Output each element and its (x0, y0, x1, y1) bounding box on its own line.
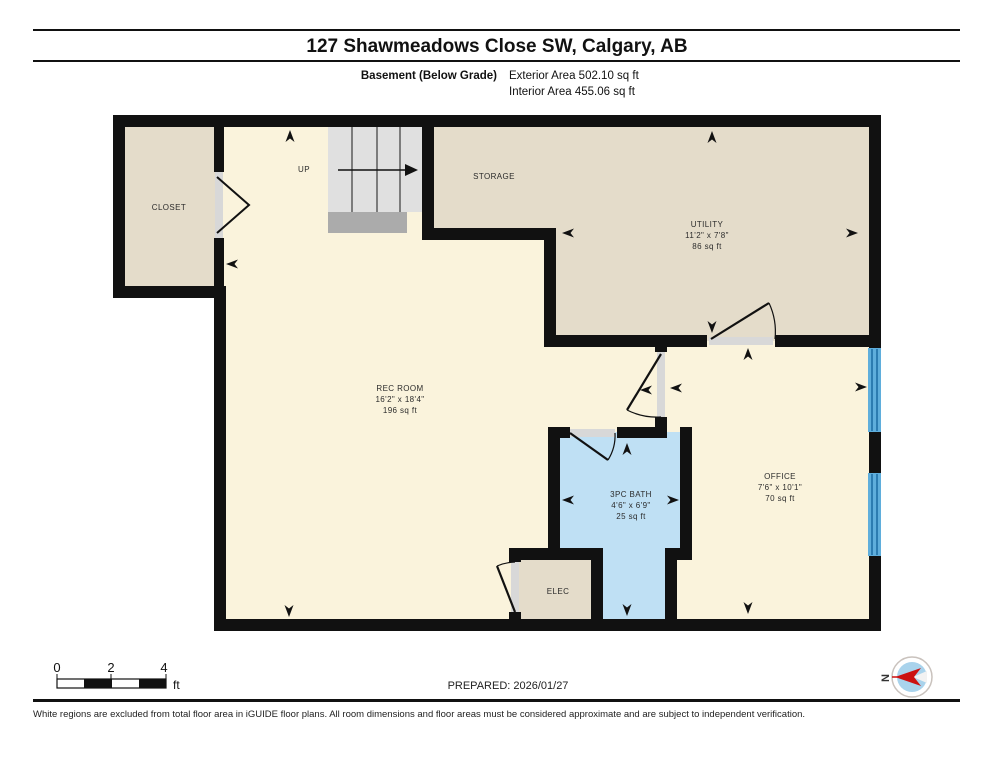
wall-bath-east (680, 427, 692, 560)
storage-label: STORAGE (473, 172, 515, 181)
bath-area: 25 sq ft (616, 512, 646, 521)
elec-label: ELEC (547, 587, 570, 596)
wall-corridor-east (665, 548, 677, 625)
wall-west-lower (214, 286, 226, 631)
page-title: 127 Shawmeadows Close SW, Calgary, AB (306, 36, 687, 57)
bath-dimensions: 4'6" x 6'9" (611, 501, 650, 510)
scale-bar-segment (139, 679, 166, 688)
closet-label: CLOSET (152, 203, 186, 212)
wall-right-lower (869, 556, 881, 631)
wall-closet-bottom (113, 286, 226, 298)
bath-door-jamb (570, 429, 615, 437)
wall-left (113, 115, 125, 298)
utility-dimensions: 11'2" x 7'8" (685, 231, 729, 240)
compass-north-label: N (880, 674, 892, 682)
wall-elec-east (591, 548, 603, 625)
stair-landing (328, 212, 407, 233)
wall-utility-bottom-east (775, 335, 881, 347)
floor-label: Basement (Below Grade) (361, 70, 497, 82)
utility-door-jamb (709, 337, 773, 345)
office-window-lower (868, 473, 881, 556)
scale-unit-label: ft (173, 678, 180, 692)
disclaimer-text: White regions are excluded from total fl… (33, 709, 805, 720)
wall-bath-west (548, 427, 560, 560)
wall-storage-bottom (422, 228, 556, 240)
header: 127 Shawmeadows Close SW, Calgary, AB Ba… (33, 29, 960, 98)
interior-area-label: Interior Area 455.06 sq ft (509, 86, 636, 98)
footer: White regions are excluded from total fl… (33, 699, 960, 720)
excluded-white-region (0, 298, 214, 700)
exterior-area-label: Exterior Area 502.10 sq ft (509, 70, 640, 82)
wall-divider-post-top (655, 335, 667, 352)
wall-right-mid (869, 432, 881, 473)
scale-tick-0: 0 (53, 660, 60, 675)
scale-bar-segment (84, 679, 112, 688)
floorplan-page: 127 Shawmeadows Close SW, Calgary, AB Ba… (0, 0, 993, 768)
wall-right-upper (869, 115, 881, 348)
rec-room-area: 196 sq ft (383, 406, 418, 415)
compass: N (880, 657, 932, 697)
rec-room-label: REC ROOM (376, 384, 423, 393)
office-label: OFFICE (764, 472, 796, 481)
wall-closet-right-lower (214, 238, 224, 286)
stairs-up-label: UP (298, 165, 310, 174)
wall-elec-top (509, 548, 603, 560)
wall-top (113, 115, 881, 127)
floor-fills (0, 121, 875, 700)
office-window-upper (868, 348, 881, 432)
prepared-date: PREPARED: 2026/01/27 (448, 680, 569, 692)
wall-closet-right-upper (214, 115, 224, 172)
header-bottom-rule (33, 60, 960, 62)
wall-utility-bottom-west (544, 335, 707, 347)
header-top-rule (33, 29, 960, 31)
scale-tick-2: 2 (107, 660, 114, 675)
rec-room-dimensions: 16'2" x 18'4" (375, 395, 424, 404)
utility-area: 86 sq ft (692, 242, 722, 251)
wall-elec-west-upper (509, 548, 521, 562)
wall-elec-west-lower (509, 612, 521, 627)
bath-label: 3PC BATH (610, 490, 652, 499)
office-door-jamb (657, 352, 665, 417)
scale-tick-4: 4 (160, 660, 167, 675)
floorplan-canvas: 127 Shawmeadows Close SW, Calgary, AB Ba… (0, 0, 993, 768)
footer-rule (33, 699, 960, 702)
utility-label: UTILITY (691, 220, 724, 229)
office-dimensions: 7'6" x 10'1" (758, 483, 802, 492)
office-area: 70 sq ft (765, 494, 795, 503)
wall-bath-top-right (617, 427, 667, 438)
wall-utility-west (544, 228, 556, 347)
wall-bottom (214, 619, 881, 631)
wall-stairs-right (422, 115, 434, 240)
